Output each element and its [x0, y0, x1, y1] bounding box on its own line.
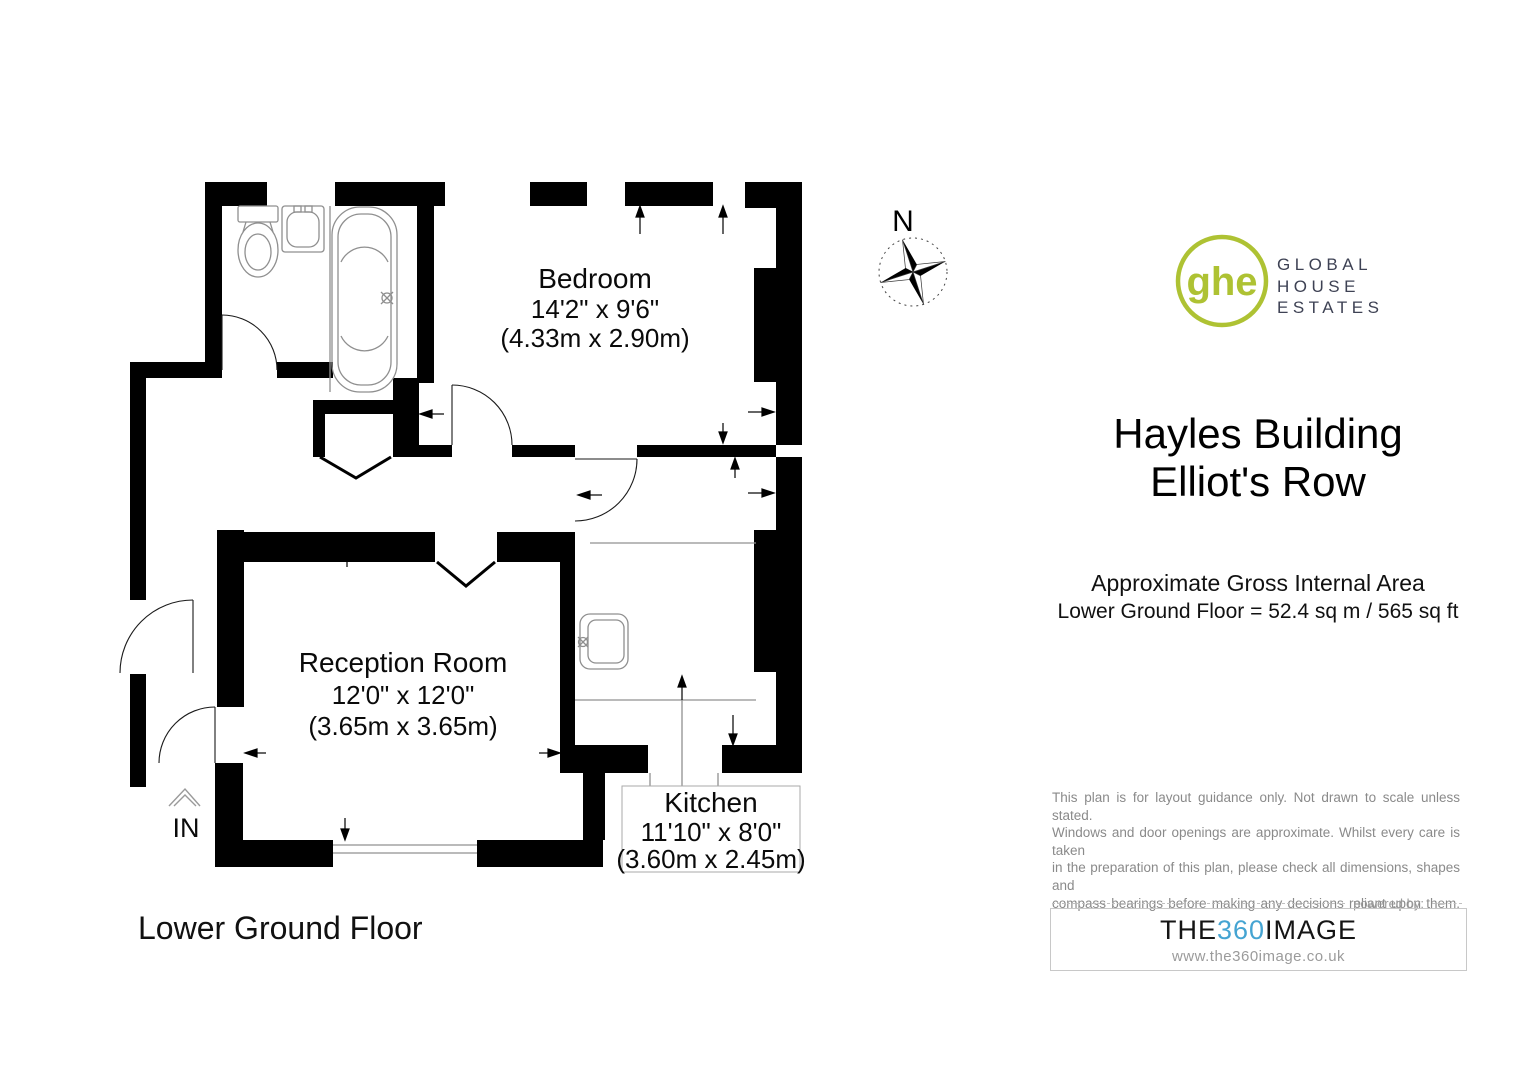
arrow-left [245, 749, 266, 757]
wall [215, 763, 243, 867]
wall [205, 200, 222, 362]
room-dims-imperial: 11'10" x 8'0" [641, 817, 782, 847]
ghe-logo-monogram: ghe [1186, 260, 1257, 304]
brand-suffix: IMAGE [1265, 915, 1357, 945]
wall [217, 530, 244, 707]
entrance-label: IN [173, 813, 200, 843]
entrance-steps-icon [169, 789, 200, 806]
bathtub-icon [332, 207, 397, 392]
property-title: Hayles Building Elliot's Row [1028, 410, 1488, 506]
wall [218, 532, 435, 562]
wall [530, 182, 587, 206]
room-name: Bedroom [538, 263, 652, 294]
wall [776, 206, 802, 268]
wall [313, 414, 325, 457]
room-dims-imperial: 14'2" x 9'6" [531, 294, 659, 324]
arrow-up [731, 458, 739, 478]
wall [243, 840, 333, 867]
wall [583, 773, 605, 840]
door-arc [120, 600, 193, 673]
arrow-left [578, 491, 602, 499]
disclaimer-line: This plan is for layout guidance only. N… [1052, 789, 1460, 824]
room-name: Kitchen [664, 787, 757, 818]
arrow-down [719, 423, 727, 443]
wall [419, 445, 452, 457]
logo-word-line: HOUSE [1277, 276, 1383, 298]
floor-level-label: Lower Ground Floor [138, 910, 423, 947]
double-doors [320, 457, 495, 586]
disclaimer-text: This plan is for layout guidance only. N… [1052, 789, 1460, 912]
door-arc [159, 707, 215, 763]
wall [130, 378, 146, 600]
area-heading: Approximate Gross Internal Area [1028, 570, 1488, 597]
room-name: Reception Room [299, 647, 508, 678]
arrow-up [678, 676, 686, 700]
divider-dash [1052, 903, 1345, 904]
wall [776, 457, 802, 530]
closet-doors [320, 457, 391, 478]
walls [130, 182, 802, 867]
arrow-up [636, 206, 644, 234]
kitchen-label-box: Kitchen 11'10" x 8'0" (3.60m x 2.45m) [616, 786, 805, 874]
compass-icon: N [870, 205, 956, 315]
wall [560, 745, 648, 773]
ghe-logo-icon: ghe [1174, 233, 1270, 329]
divider-dash [1432, 903, 1462, 904]
basin-icon [282, 206, 324, 252]
wall [393, 378, 419, 457]
wall [130, 674, 146, 787]
reception-doors [437, 562, 495, 586]
disclaimer-line: in the preparation of this plan, please … [1052, 859, 1460, 894]
property-title-line1: Hayles Building [1028, 410, 1488, 458]
wall [335, 182, 445, 206]
wall [637, 445, 776, 457]
room-dims-imperial: 12'0" x 12'0" [332, 680, 475, 710]
door-arc [575, 459, 637, 521]
arrow-right [748, 408, 774, 416]
wall [313, 400, 393, 414]
arrow-left [420, 410, 444, 418]
compass-north-label: N [892, 205, 914, 238]
arrow-right [748, 489, 774, 497]
door-arc [452, 385, 512, 445]
logo-word-line: ESTATES [1277, 297, 1383, 319]
area-detail: Lower Ground Floor = 52.4 sq m / 565 sq … [1028, 600, 1488, 624]
logo-word-line: GLOBAL [1277, 254, 1383, 276]
logo-wordmark: GLOBAL HOUSE ESTATES [1277, 254, 1383, 319]
toilet-icon [238, 206, 278, 277]
arrow-right [539, 749, 560, 757]
brand-number: 360 [1217, 915, 1265, 945]
wall [560, 532, 575, 745]
the360image-url: www.the360image.co.uk [1172, 948, 1345, 965]
floorplan-page: N Bedroom 14'2" x 9'6" (4.33m x 2.90m) R… [0, 0, 1528, 1080]
wall [130, 362, 222, 378]
arrow-up [719, 206, 727, 234]
arrow-down [341, 818, 349, 840]
room-labels: Bedroom 14'2" x 9'6" (4.33m x 2.90m) Rec… [299, 263, 690, 741]
door-arc [222, 315, 277, 370]
the360image-box: THE360IMAGE www.the360image.co.uk [1050, 908, 1467, 971]
wall [625, 182, 713, 206]
room-dims-metric: (4.33m x 2.90m) [500, 323, 689, 353]
opening-arrows [245, 206, 774, 840]
arrow-down [729, 715, 737, 745]
wall [754, 530, 802, 672]
disclaimer-line: Windows and door openings are approximat… [1052, 824, 1460, 859]
wall [776, 672, 802, 745]
brand-prefix: THE [1160, 915, 1217, 945]
wall [745, 182, 802, 208]
the360image-wordmark: THE360IMAGE [1160, 915, 1357, 946]
wall [776, 382, 802, 445]
wall [722, 745, 802, 773]
room-dims-metric: (3.60m x 2.45m) [616, 844, 805, 874]
wall [754, 268, 802, 382]
wall [277, 362, 333, 378]
wall [477, 840, 603, 867]
wall [417, 206, 434, 383]
kitchen-sink-icon [578, 614, 628, 669]
room-dims-metric: (3.65m x 3.65m) [308, 711, 497, 741]
wall [512, 445, 575, 457]
property-title-line2: Elliot's Row [1028, 458, 1488, 506]
